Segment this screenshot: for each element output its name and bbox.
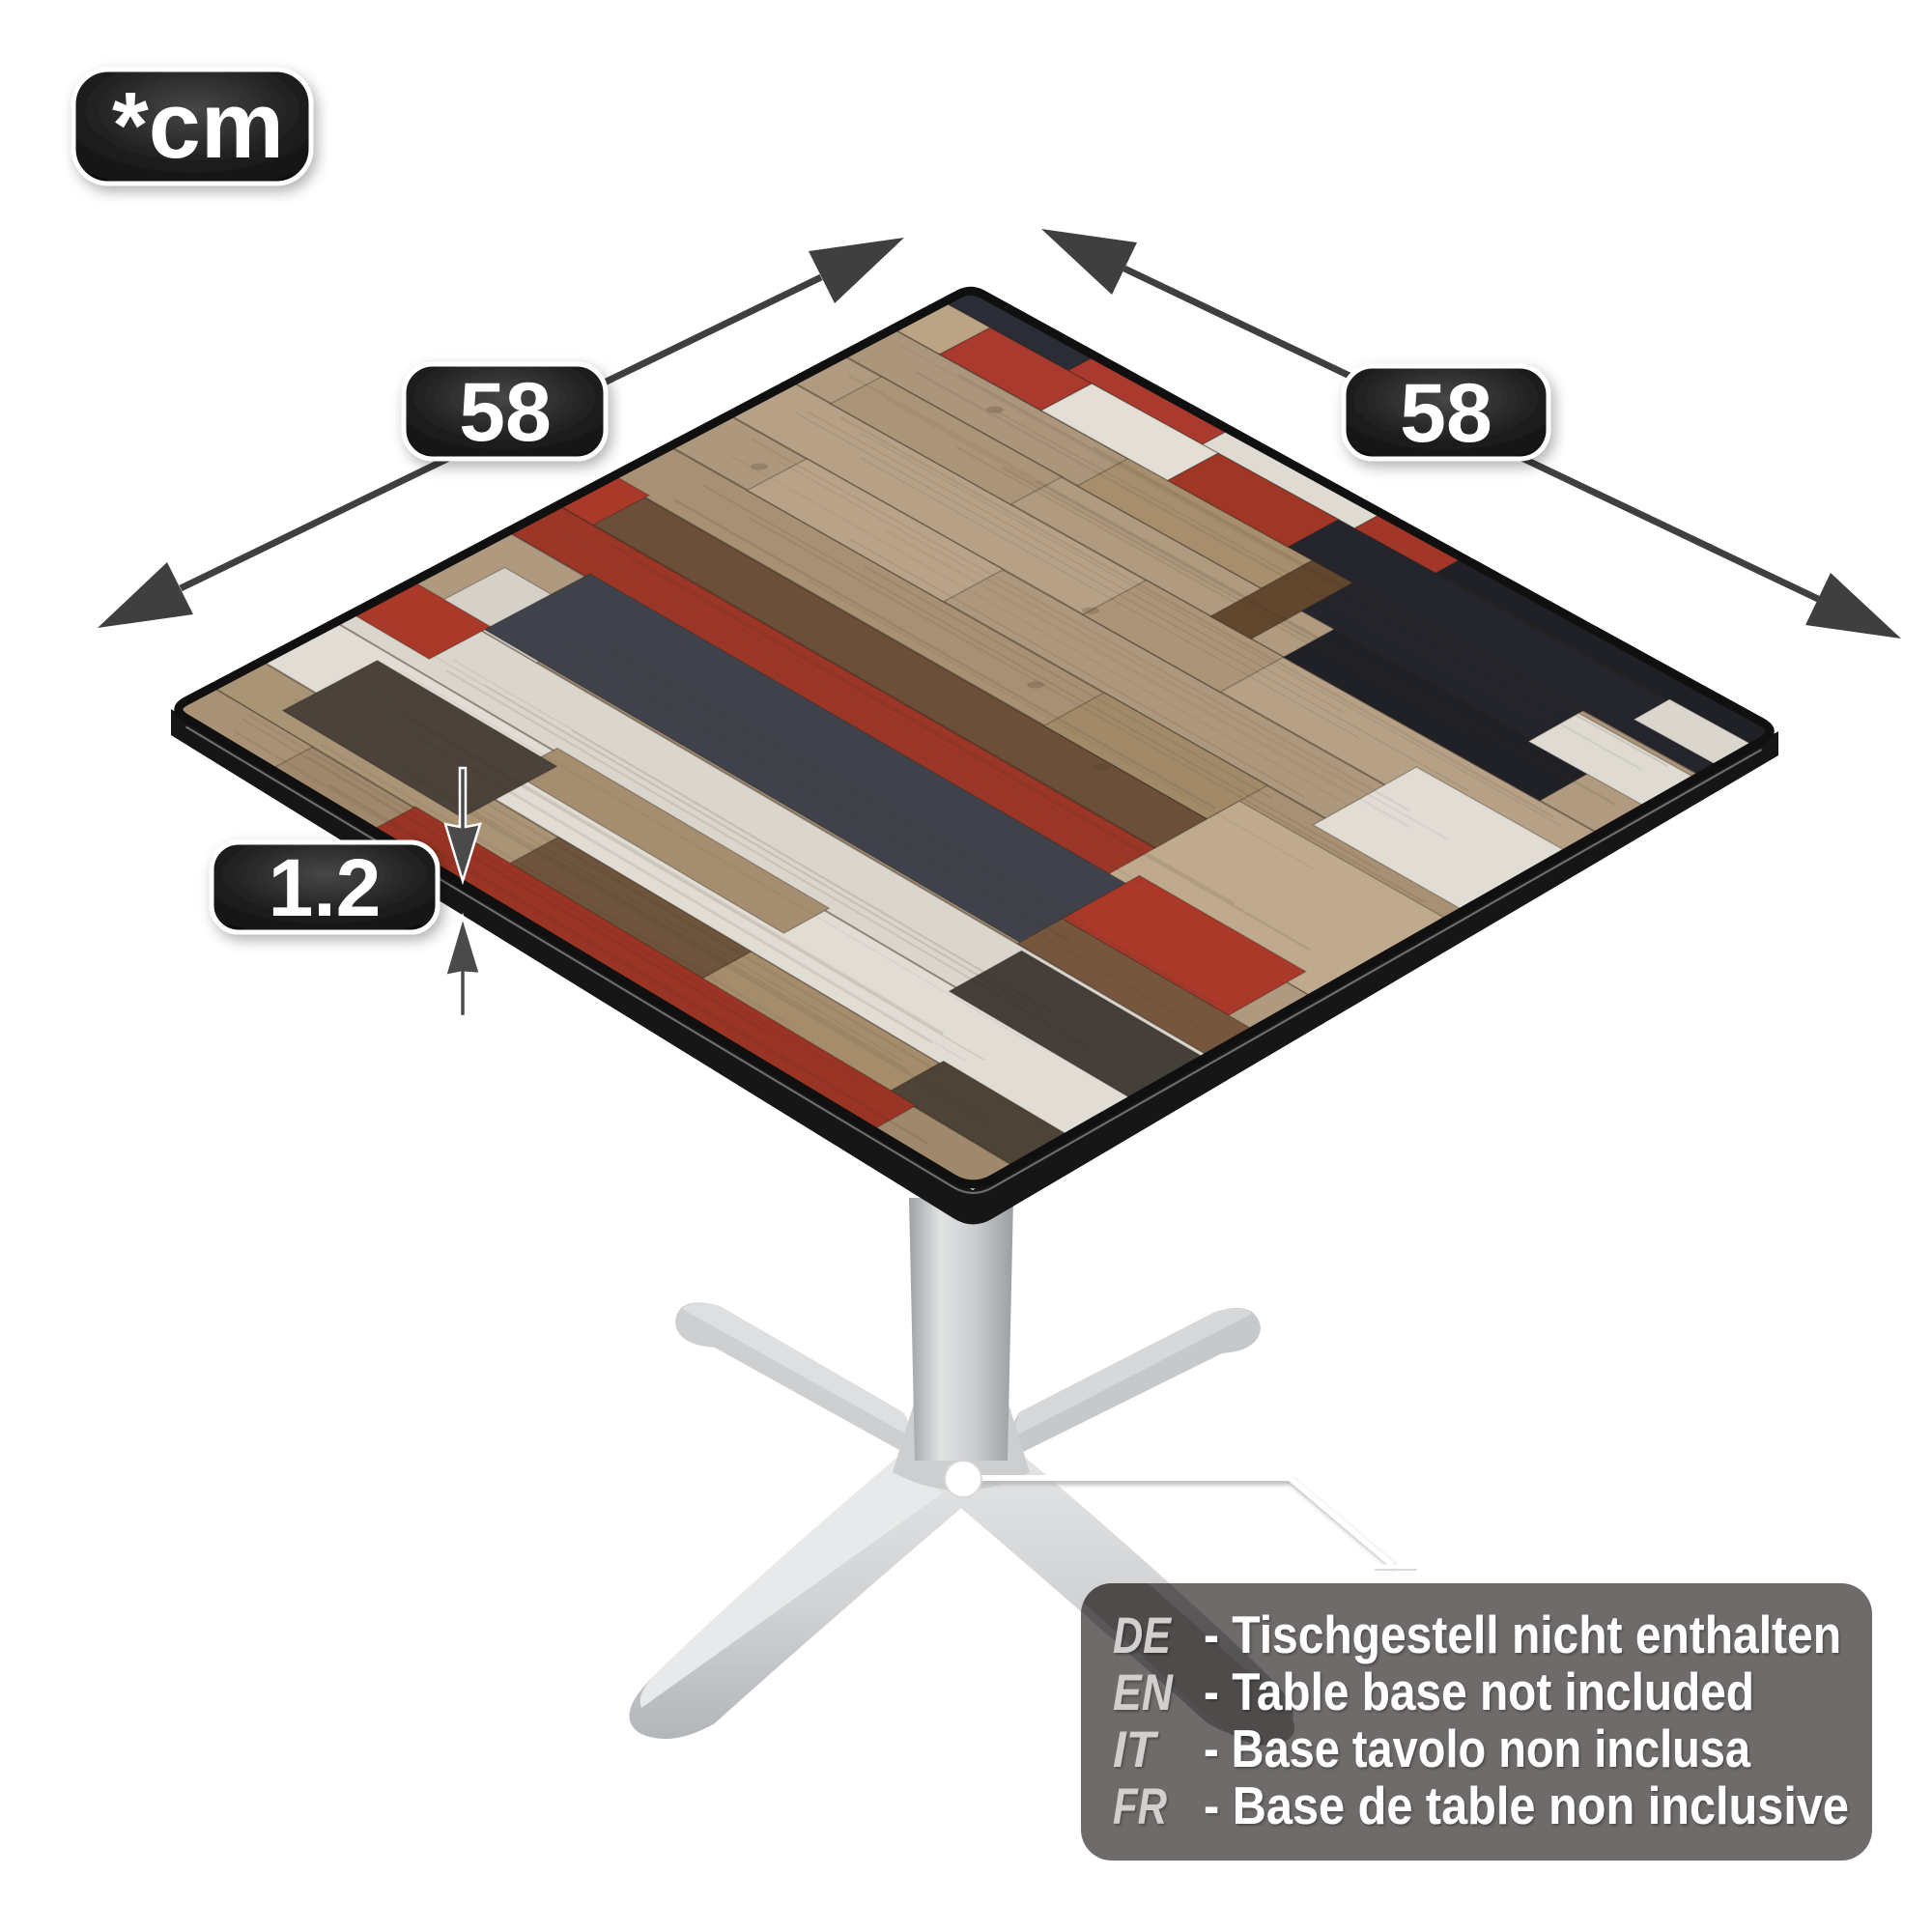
svg-text:EN: EN [1113, 1664, 1174, 1721]
svg-text:1.2: 1.2 [269, 842, 382, 933]
svg-text:- Table base not included: - Table base not included [1204, 1662, 1754, 1721]
svg-text:DE: DE [1113, 1607, 1172, 1664]
svg-text:FR: FR [1113, 1778, 1167, 1835]
svg-text:58: 58 [1400, 367, 1492, 460]
svg-text:- Base tavolo non inclusa: - Base tavolo non inclusa [1204, 1719, 1750, 1778]
svg-text:IT: IT [1113, 1721, 1159, 1778]
svg-text:- Tischgestell nicht enthalten: - Tischgestell nicht enthalten [1204, 1605, 1841, 1664]
svg-text:*cm: *cm [112, 72, 284, 178]
svg-text:58: 58 [459, 366, 552, 459]
svg-text:- Base de table non inclusive: - Base de table non inclusive [1204, 1776, 1849, 1835]
